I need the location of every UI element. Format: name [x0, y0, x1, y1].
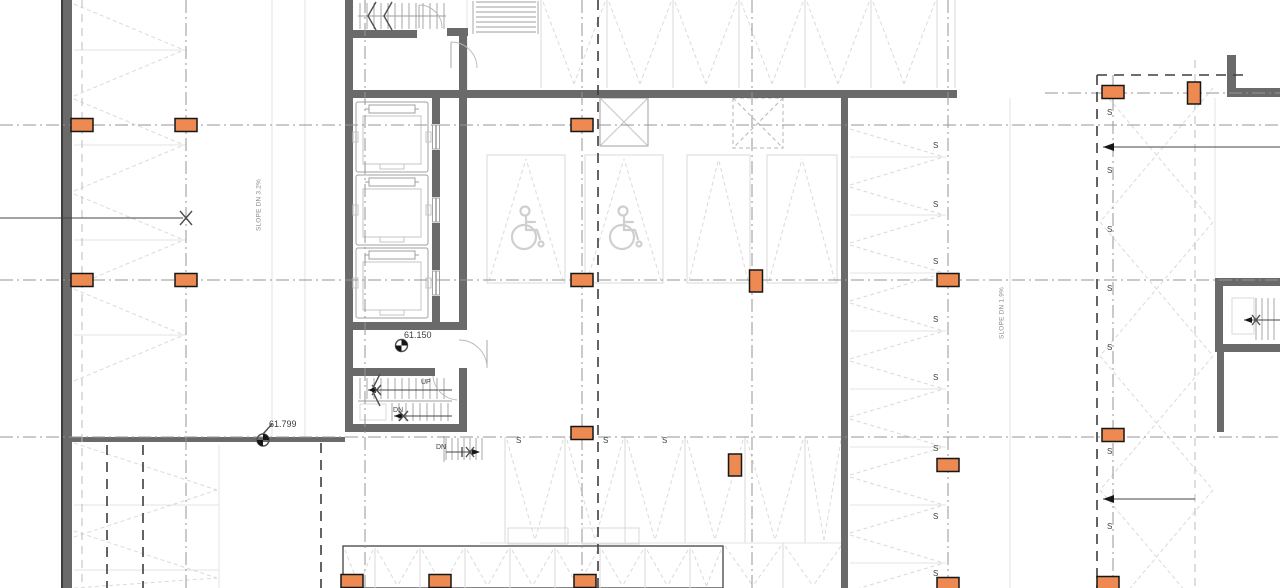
- parking-chevron: [512, 550, 533, 586]
- column-marker: [571, 427, 593, 440]
- parking-chevron: [609, 2, 640, 84]
- stall-size-tag: S: [603, 436, 608, 445]
- stall-size-tag: S: [933, 257, 938, 266]
- wall: [447, 28, 468, 36]
- wall: [345, 322, 467, 330]
- parking-chevron: [850, 215, 944, 243]
- stall-size-tag: S: [933, 444, 938, 453]
- parking-chevron: [692, 550, 707, 586]
- elevator-bracket: [380, 237, 404, 242]
- wheelchair-icon: [521, 207, 530, 216]
- stall-size-tag: S: [1107, 284, 1112, 293]
- stair-up-label: UP: [421, 379, 431, 386]
- parking-chevron: [74, 335, 184, 381]
- parking-chevron: [675, 2, 706, 84]
- column-marker: [429, 575, 451, 588]
- stall-size-tag: S: [662, 436, 667, 445]
- parking-chevron: [772, 2, 803, 84]
- column-marker: [937, 274, 959, 287]
- parking-chevron: [640, 2, 671, 84]
- wall: [1215, 344, 1280, 352]
- wall: [432, 150, 440, 197]
- column-marker: [175, 119, 197, 132]
- parking-chevron: [74, 490, 217, 537]
- column-marker: [1102, 86, 1124, 99]
- parking-chevron: [668, 550, 689, 586]
- wall: [459, 98, 467, 330]
- parking-chevron: [850, 389, 944, 417]
- parking-chevron: [377, 550, 398, 586]
- level-marker-icon: [396, 346, 402, 352]
- parking-chevron: [850, 535, 944, 563]
- parking-chevron: [526, 159, 563, 281]
- floor-plan-drawing: [0, 0, 1280, 588]
- wall: [432, 223, 440, 270]
- parking-chevron: [802, 159, 835, 281]
- level-value: 61.799: [269, 419, 297, 429]
- door-arc: [459, 340, 487, 368]
- parking-chevron: [74, 443, 217, 490]
- column-marker: [937, 578, 959, 588]
- wall: [459, 368, 467, 432]
- level-marker-icon: [402, 340, 408, 346]
- parking-chevron: [850, 245, 944, 273]
- stall-size-tag: S: [516, 436, 521, 445]
- column-marker: [571, 119, 593, 132]
- parking-chevron: [850, 477, 944, 505]
- wheelchair-icon: [539, 242, 544, 247]
- column-marker: [750, 270, 763, 292]
- wheelchair-icon: [637, 242, 642, 247]
- column-marker: [1188, 82, 1201, 104]
- level-value: 61.150: [404, 330, 432, 340]
- wall: [345, 368, 435, 376]
- wall: [63, 437, 345, 442]
- column-marker: [574, 575, 596, 588]
- parking-chevron: [533, 550, 554, 586]
- parking-chevron: [873, 2, 904, 84]
- parking-chevron: [850, 563, 944, 588]
- stall-size-tag: S: [1107, 108, 1112, 117]
- parking-chevron: [74, 289, 184, 335]
- parking-chevron: [824, 440, 841, 540]
- parking-chevron: [467, 550, 488, 586]
- stall-size-tag: S: [1107, 343, 1112, 352]
- elevator-door-panel: [433, 271, 436, 295]
- elevator-door-panel: [436, 271, 439, 295]
- parking-chevron: [725, 546, 753, 586]
- parking-stall: [767, 155, 837, 283]
- wall: [432, 98, 440, 124]
- parking-chevron: [74, 50, 184, 96]
- stall-size-tag: S: [1107, 166, 1112, 175]
- parking-chevron: [623, 550, 644, 586]
- parking-chevron: [74, 578, 217, 588]
- parking-chevron: [624, 159, 661, 281]
- parking-chevron: [850, 361, 944, 389]
- parking-chevron: [850, 303, 944, 331]
- parking-chevron: [687, 440, 715, 540]
- parking-chevron: [655, 440, 683, 540]
- wall: [1215, 278, 1223, 352]
- column-marker: [729, 454, 742, 476]
- parking-chevron: [689, 159, 719, 281]
- parking-chevron: [627, 440, 655, 540]
- wall: [345, 0, 353, 432]
- stall-size-tag: S: [933, 373, 938, 382]
- column-marker: [341, 575, 363, 588]
- parking-chevron: [74, 145, 184, 191]
- stall-size-tag: S: [933, 512, 938, 521]
- stair-landing: [1232, 298, 1254, 334]
- parking-chevron: [647, 550, 668, 586]
- arrowhead: [1103, 143, 1114, 151]
- wall: [345, 90, 957, 98]
- elevator-door-panel: [433, 198, 436, 222]
- stall-box: [582, 528, 639, 544]
- parking-chevron: [1100, 490, 1213, 588]
- slope-annotation: SLOPE DN 1.9%: [999, 287, 1006, 339]
- wall: [345, 424, 467, 432]
- door-arc: [419, 5, 442, 28]
- parking-chevron: [775, 440, 803, 540]
- level-marker-icon: [263, 434, 269, 440]
- parking-chevron: [850, 419, 944, 447]
- parking-chevron: [398, 550, 419, 586]
- elevator-car-interior: [363, 262, 421, 310]
- parking-chevron: [850, 505, 944, 533]
- elevator-car-interior: [363, 116, 421, 164]
- parking-chevron: [488, 550, 509, 586]
- elevator-car-interior: [363, 189, 421, 237]
- parking-chevron: [74, 4, 184, 50]
- parking-chevron: [602, 550, 623, 586]
- level-marker-icon: [257, 440, 263, 446]
- parking-chevron: [904, 2, 935, 84]
- parking-chevron: [807, 2, 838, 84]
- parking-chevron: [769, 159, 802, 281]
- parking-chevron: [850, 331, 944, 359]
- parking-chevron: [707, 550, 722, 586]
- elevator-door-panel: [436, 125, 439, 149]
- parking-chevron: [507, 440, 535, 540]
- parking-chevron: [807, 440, 824, 540]
- parking-chevron: [753, 546, 781, 586]
- parking-chevron: [850, 129, 944, 157]
- stall-size-tag: S: [933, 569, 938, 578]
- stall-size-tag: S: [1107, 447, 1112, 456]
- stall-size-tag: S: [933, 315, 938, 324]
- parking-chevron: [74, 194, 184, 240]
- parking-chevron: [785, 546, 813, 586]
- parking-chevron: [747, 440, 775, 540]
- column-marker: [71, 274, 93, 287]
- column-marker: [175, 274, 197, 287]
- parking-chevron: [850, 187, 944, 215]
- elevator-door-operator: [369, 105, 415, 113]
- parking-chevron: [850, 273, 944, 301]
- parking-chevron: [1100, 490, 1213, 588]
- column-marker: [571, 274, 593, 287]
- slope-annotation: SLOPE DN 3.2%: [256, 179, 263, 231]
- stall-size-tag: S: [1107, 225, 1112, 234]
- parking-chevron: [850, 157, 944, 185]
- wheelchair-icon: [512, 225, 536, 249]
- parking-stall: [687, 155, 750, 283]
- stall-size-tag: S: [933, 200, 938, 209]
- parking-chevron: [838, 2, 869, 84]
- stair-landing: [360, 404, 386, 420]
- wall: [63, 0, 72, 588]
- column-marker: [937, 459, 959, 472]
- parking-chevron: [574, 2, 605, 84]
- arrowhead: [1244, 317, 1252, 323]
- parking-chevron: [850, 447, 944, 475]
- parking-chevron: [587, 159, 624, 281]
- parking-chevron: [543, 2, 574, 84]
- elevator-bracket: [380, 310, 404, 315]
- wheelchair-icon: [619, 207, 628, 216]
- parking-chevron: [813, 546, 841, 586]
- wall: [345, 30, 417, 38]
- wall: [1217, 352, 1224, 432]
- elevator-bracket: [380, 164, 404, 169]
- column-marker: [1097, 577, 1119, 588]
- wall: [432, 296, 440, 322]
- parking-chevron: [489, 159, 526, 281]
- wheelchair-icon: [610, 225, 634, 249]
- column-marker: [1102, 429, 1124, 442]
- wall: [1215, 278, 1280, 286]
- stair-down-label: DN: [393, 407, 403, 414]
- parking-chevron: [535, 440, 563, 540]
- elevator-door-panel: [436, 198, 439, 222]
- parking-chevron: [719, 159, 749, 281]
- wall: [841, 98, 848, 588]
- elevator-door-panel: [433, 125, 436, 149]
- parking-chevron: [706, 2, 737, 84]
- stall-size-tag: S: [1107, 522, 1112, 531]
- parking-chevron: [741, 2, 772, 84]
- elevator-door-operator: [369, 251, 415, 259]
- stair-down-label: DN: [436, 444, 446, 451]
- column-marker: [71, 119, 93, 132]
- elevator-door-operator: [369, 178, 415, 186]
- parking-floor-plan: 61.150 61.799 SLOPE DN 3.2% SLOPE DN 1.9…: [0, 0, 1280, 588]
- parking-chevron: [595, 440, 623, 540]
- parking-chevron: [74, 531, 217, 578]
- stall-size-tag: S: [933, 141, 938, 150]
- parking-chevron: [567, 440, 595, 540]
